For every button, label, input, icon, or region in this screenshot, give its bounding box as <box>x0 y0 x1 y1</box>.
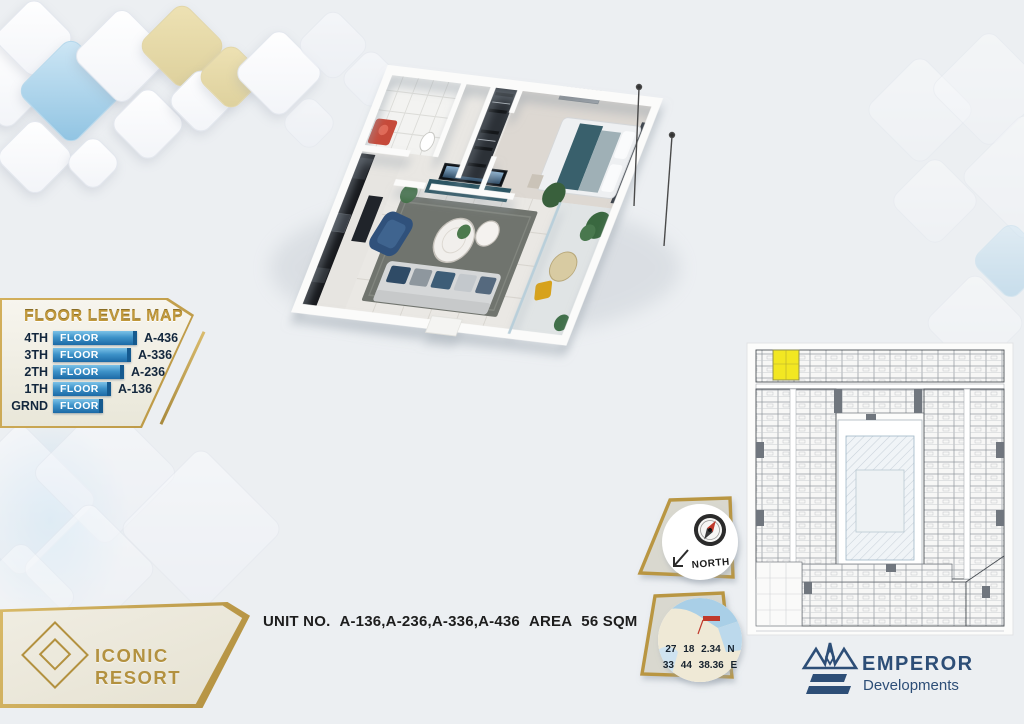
floor-level-map-title: FLOOR LEVEL MAP <box>24 308 198 326</box>
floor-level-label: 3TH <box>8 348 48 362</box>
floor-row-4th: 4TH FLOOR A-436 <box>8 330 198 346</box>
unit-number-label: UNIT NO. <box>263 613 330 630</box>
resort-diamond-icon <box>21 621 89 689</box>
area-label: AREA <box>529 613 572 630</box>
iconic-resort-panel: ICONIC RESORT <box>0 602 250 708</box>
open-area <box>756 562 802 626</box>
unit-info-line: UNIT NO.A-136,A-236,A-336,A-436AREA56 SQ… <box>263 613 633 630</box>
developer-logo: EMPEROR Developments <box>796 640 1020 706</box>
crown-icon <box>804 643 856 668</box>
floor-bar: FLOOR <box>53 348 131 362</box>
developer-tagline: Developments <box>863 677 959 694</box>
floor-bar: FLOOR <box>53 399 103 413</box>
corridor-top <box>756 384 1004 389</box>
floor-row-2th: 2TH FLOOR A-236 <box>8 364 198 380</box>
floor-bar: FLOOR <box>53 365 124 379</box>
apartment-3d-render <box>240 18 700 448</box>
deco-diamond <box>63 133 122 192</box>
floor-row-3th: 3TH FLOOR A-336 <box>8 347 198 363</box>
floor-row-1th: 1TH FLOOR A-136 <box>8 381 198 397</box>
floor-unit-number: A-136 <box>118 382 152 396</box>
floor-unit-number: A-436 <box>144 331 178 345</box>
floor-level-label: 1TH <box>8 382 48 396</box>
floor-level-label: GRND <box>8 399 48 413</box>
floor-level-map-panel: FLOOR LEVEL MAP 4TH FLOOR A-436 3TH FLOO… <box>0 298 200 428</box>
entry-door-jamb <box>425 316 462 336</box>
units-bottom-band <box>802 582 966 626</box>
brochure-page: FLOOR LEVEL MAP 4TH FLOOR A-436 3TH FLOO… <box>0 0 1024 724</box>
unit-numbers: A-136,A-236,A-336,A-436 <box>339 613 520 630</box>
latitude-text: 27 18 2.34 N <box>665 644 734 655</box>
floor-unit-number: A-236 <box>131 365 165 379</box>
resort-name: ICONIC RESORT <box>95 645 247 689</box>
site-plan <box>746 342 1014 636</box>
longitude-text: 33 44 38.36 E <box>663 660 738 671</box>
badges: NORTH 27 18 2.34 N 33 44 38.36 E <box>626 492 766 697</box>
floor-unit-number: A-336 <box>138 348 172 362</box>
floor-bar: FLOOR <box>53 382 111 396</box>
floor-level-label: 2TH <box>8 365 48 379</box>
floor-bar: FLOOR <box>53 331 137 345</box>
emperor-e-icon <box>806 674 851 694</box>
floor-level-label: 4TH <box>8 331 48 345</box>
pool <box>856 470 904 532</box>
developer-name: EMPEROR <box>862 653 974 675</box>
